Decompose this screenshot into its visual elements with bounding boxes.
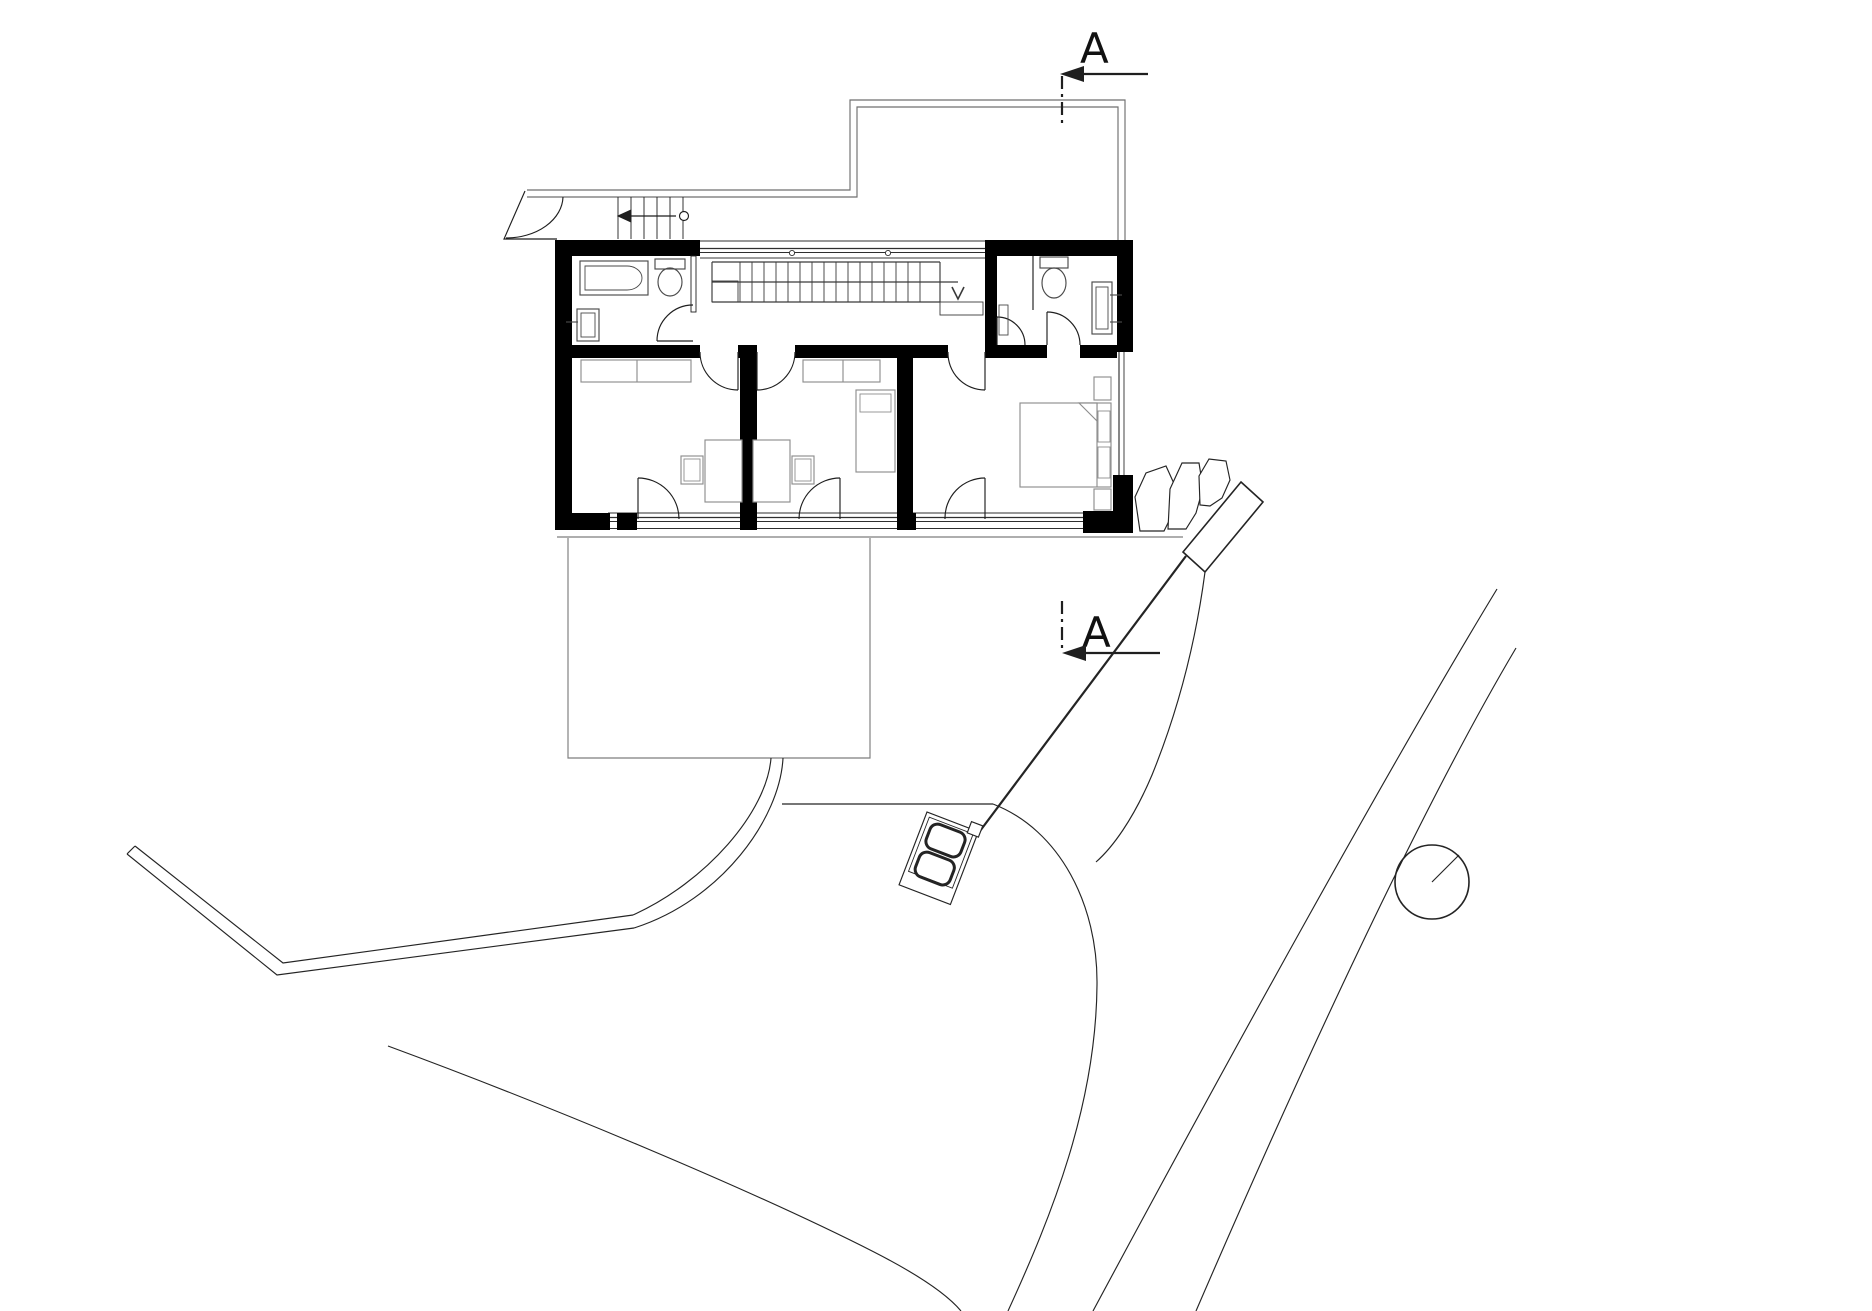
wardrobe [581,360,691,382]
north-wall-left [555,240,700,256]
corridor-wall-segment [795,345,948,358]
south-wall-pier [555,513,610,530]
stair-landing [712,281,738,302]
platform-edge [504,191,557,239]
bathtub-inner [585,266,642,290]
roof-outline-inner [527,107,1118,240]
nightstand [1094,377,1111,400]
sink [577,309,599,341]
single-bed [856,390,895,472]
room-divider-wall [897,358,913,513]
stair-landing [940,302,983,315]
bathroom-partition [691,256,696,312]
roof-outline [527,100,1125,240]
window-post-icon [789,250,794,255]
desk [705,440,742,502]
wardrobe [803,360,880,382]
fixtures [566,257,1122,341]
toilet-bowl [1042,268,1066,298]
toilet-tank [1040,257,1068,268]
section-label-top: A [1080,24,1109,73]
car-body [899,812,978,905]
sink-basin [1096,287,1108,329]
door-swing [997,317,1025,345]
small-basin [999,305,1008,335]
garden-curve [993,804,1097,1311]
roof-outline-outer [527,100,1125,240]
corridor-wall-segment [738,345,757,358]
corridor-wall-segment [985,345,1047,358]
stair-down-arrow-icon [952,287,964,299]
entrance-platform [504,191,689,239]
section-label-bottom: A [1082,608,1111,657]
indoor-stair [700,258,985,315]
section-arrow-icon [1062,645,1086,661]
section-arrow-icon [1060,66,1084,82]
sink [1092,282,1112,334]
door-swing [700,352,738,390]
south-east-corner [1083,511,1133,533]
tree-radius-line [1432,855,1459,882]
rock-icon [1199,459,1230,506]
corridor-wall-segment [1080,345,1117,358]
slope-line [1096,572,1205,862]
west-wall [555,240,572,530]
nightstand [1094,489,1111,510]
terrace-rect [568,538,870,758]
door-swing [657,305,693,341]
window-post-icon [885,250,890,255]
floor-plan-drawing: A A [0,0,1872,1311]
walls [555,240,1133,533]
furniture [581,360,1111,510]
south-wall-pier [740,513,757,530]
door-swing [757,352,795,390]
rock-icon [1168,463,1203,529]
footpath-edge [135,846,633,963]
door-swing [948,352,985,390]
section-marker-top: A [1060,24,1148,128]
door-swing [1047,312,1080,345]
east-wall-upper [1117,240,1133,352]
partitions-and-doors [638,256,1080,519]
footpath-end [127,846,135,854]
south-wall-pier [617,513,637,530]
footpath-edge [127,854,634,975]
toilet-bowl [658,268,682,296]
corridor-wall-segment [572,345,700,358]
south-wall-pier [897,513,916,530]
handrail-line [980,556,1186,831]
garden-curve [388,1046,961,1311]
car-icon [899,805,983,905]
north-wall-right [985,240,1133,256]
sink-basin [581,313,595,337]
stair-start-circle [680,212,689,221]
stair-direction-arrow-icon [618,210,631,222]
site-lines [127,459,1516,1311]
desk [753,440,790,502]
contour-line [1093,589,1497,1311]
contour-line [1196,648,1516,1311]
bathroom-wall [985,256,997,345]
entrance-door-swing [506,197,563,238]
